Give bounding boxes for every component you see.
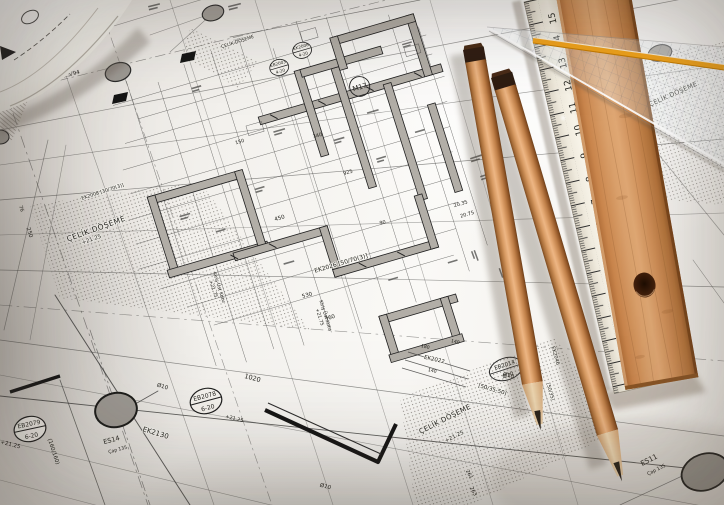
- label-dim-250: 250: [24, 227, 33, 239]
- heavy-wall-lines: [10, 352, 470, 462]
- column-large: [92, 389, 140, 431]
- label-dim-140b: 140: [427, 367, 437, 375]
- label-es14: ES14: [102, 434, 120, 446]
- label-dim-90: 90: [379, 219, 387, 226]
- label-ek2130: EK2130: [142, 425, 170, 440]
- plan-callout-1: EK2008 4-20: [291, 40, 314, 61]
- label-kot-2075: 20.75: [460, 210, 476, 220]
- blueprint-drawing: 450 530 360 925 340 90 150 EK2026 [50/70…: [0, 0, 724, 505]
- label-level-2125-cl: +21.25: [225, 414, 244, 424]
- label-kot-2035: 20.35: [453, 199, 469, 209]
- label-dim-1020: 1020: [243, 372, 261, 384]
- photo-scene: 450 530 360 925 340 90 150 EK2026 [50/70…: [0, 0, 724, 505]
- label-phi10-1: Ø10: [156, 382, 169, 392]
- label-dim-925: 925: [343, 169, 354, 177]
- label-level-2125-edge: +21.25: [0, 440, 21, 451]
- label-dim-530: 530: [301, 291, 313, 300]
- label-es14-cap: Çap 135: [108, 445, 128, 456]
- label-dim-76: 76: [17, 205, 25, 213]
- label-phi10-2: Ø10: [319, 482, 332, 492]
- label-ek2022: EK2022: [423, 355, 445, 366]
- label-dim-150: 150: [235, 138, 246, 146]
- label-dim-450: 450: [274, 214, 286, 223]
